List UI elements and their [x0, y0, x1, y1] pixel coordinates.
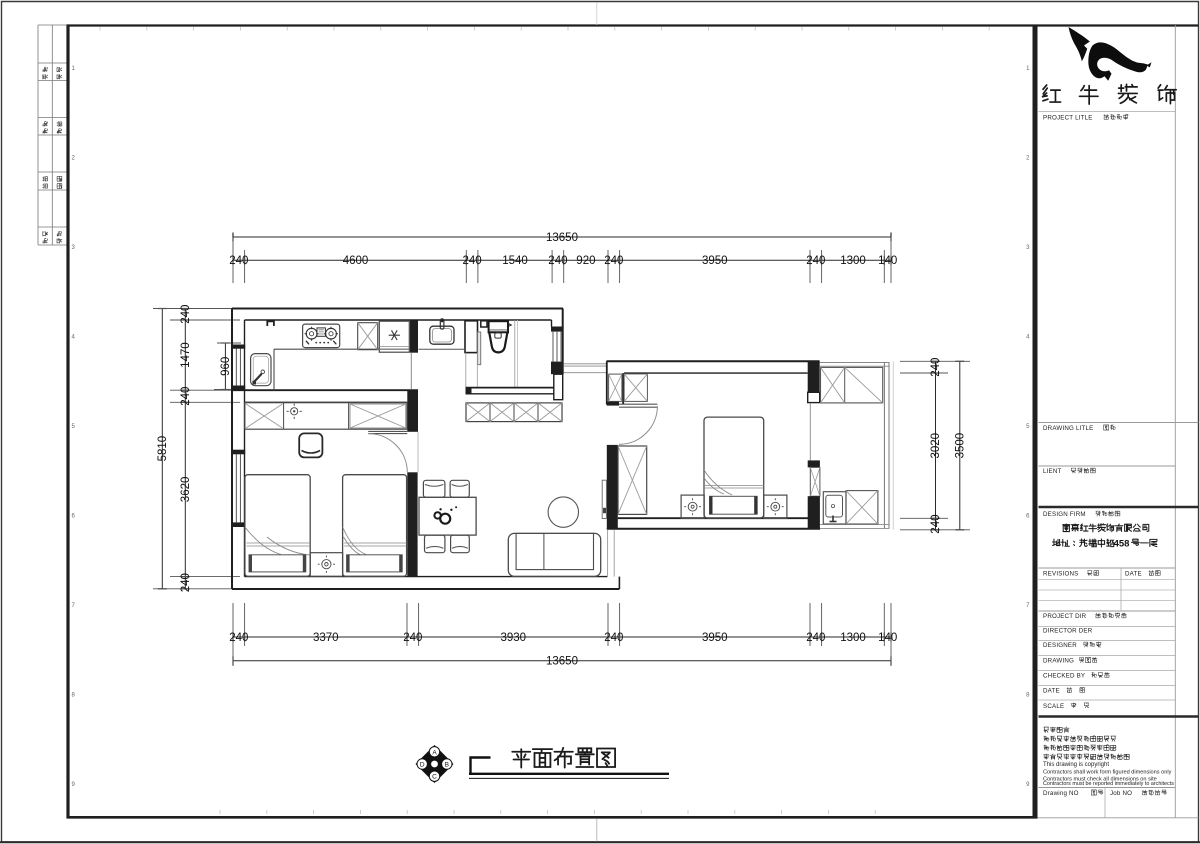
svg-text:3950: 3950	[702, 255, 728, 267]
svg-text:B: B	[445, 762, 449, 769]
svg-text:LIENT: LIENT	[1043, 468, 1062, 475]
svg-text:140: 140	[878, 632, 897, 644]
svg-text:DATE: DATE	[1125, 571, 1142, 578]
svg-text:Job NO: Job NO	[1110, 790, 1132, 797]
svg-text:SCALE: SCALE	[1043, 703, 1064, 710]
svg-text:D: D	[420, 762, 425, 769]
svg-text:240: 240	[180, 573, 192, 592]
svg-text:DESIGN FIRM: DESIGN FIRM	[1043, 511, 1086, 518]
svg-text:240: 240	[604, 632, 623, 644]
svg-text:240: 240	[806, 632, 825, 644]
svg-text:240: 240	[930, 515, 942, 534]
svg-text:240: 240	[463, 255, 482, 267]
svg-text:13650: 13650	[546, 656, 578, 668]
svg-text:140: 140	[878, 255, 897, 267]
svg-text:3620: 3620	[180, 477, 192, 503]
svg-text:3020: 3020	[930, 433, 942, 459]
svg-text:DESIGNER: DESIGNER	[1043, 642, 1077, 649]
svg-text:Contractors shall work form fi: Contractors shall work form figured dime…	[1043, 770, 1172, 776]
svg-text:240: 240	[229, 632, 248, 644]
svg-text:240: 240	[403, 632, 422, 644]
svg-text:240: 240	[229, 255, 248, 267]
svg-text:920: 920	[576, 255, 595, 267]
svg-text:DRAWING: DRAWING	[1043, 658, 1074, 665]
svg-text:1300: 1300	[840, 255, 866, 267]
svg-text:5810: 5810	[157, 436, 169, 462]
svg-text:DIRECTOR DER: DIRECTOR DER	[1043, 628, 1093, 635]
svg-text:REVISIONS: REVISIONS	[1043, 571, 1079, 578]
svg-text:DATE: DATE	[1043, 688, 1060, 695]
svg-text:240: 240	[180, 305, 192, 324]
svg-text:240: 240	[604, 255, 623, 267]
svg-text:960: 960	[220, 357, 232, 376]
svg-text:DRAWING LITLE: DRAWING LITLE	[1043, 425, 1094, 432]
svg-text:CHECKED BY: CHECKED BY	[1043, 673, 1085, 680]
svg-text:240: 240	[930, 358, 942, 377]
svg-text:3950: 3950	[702, 632, 728, 644]
svg-text:Drawing NO: Drawing NO	[1043, 790, 1079, 797]
svg-text:240: 240	[548, 255, 567, 267]
svg-text:A: A	[432, 749, 437, 756]
svg-text:1540: 1540	[502, 255, 528, 267]
svg-text:3500: 3500	[955, 433, 967, 459]
svg-text:3930: 3930	[501, 632, 527, 644]
svg-text:This drawing is copyright: This drawing is copyright	[1043, 762, 1109, 768]
svg-text:240: 240	[806, 255, 825, 267]
svg-text:4600: 4600	[343, 255, 369, 267]
svg-text:458: 458	[1114, 539, 1130, 550]
svg-text:Contractors must be reported i: Contractors must be reported immediately…	[1043, 781, 1174, 787]
svg-text:C: C	[432, 774, 437, 781]
svg-text:13650: 13650	[546, 232, 578, 244]
svg-text:1470: 1470	[180, 342, 192, 368]
svg-text:3370: 3370	[313, 632, 339, 644]
svg-text:240: 240	[180, 387, 192, 406]
svg-text:PROJECT LITLE: PROJECT LITLE	[1043, 115, 1093, 122]
svg-text:PROJECT DIR: PROJECT DIR	[1043, 613, 1087, 620]
svg-text:1300: 1300	[840, 632, 866, 644]
